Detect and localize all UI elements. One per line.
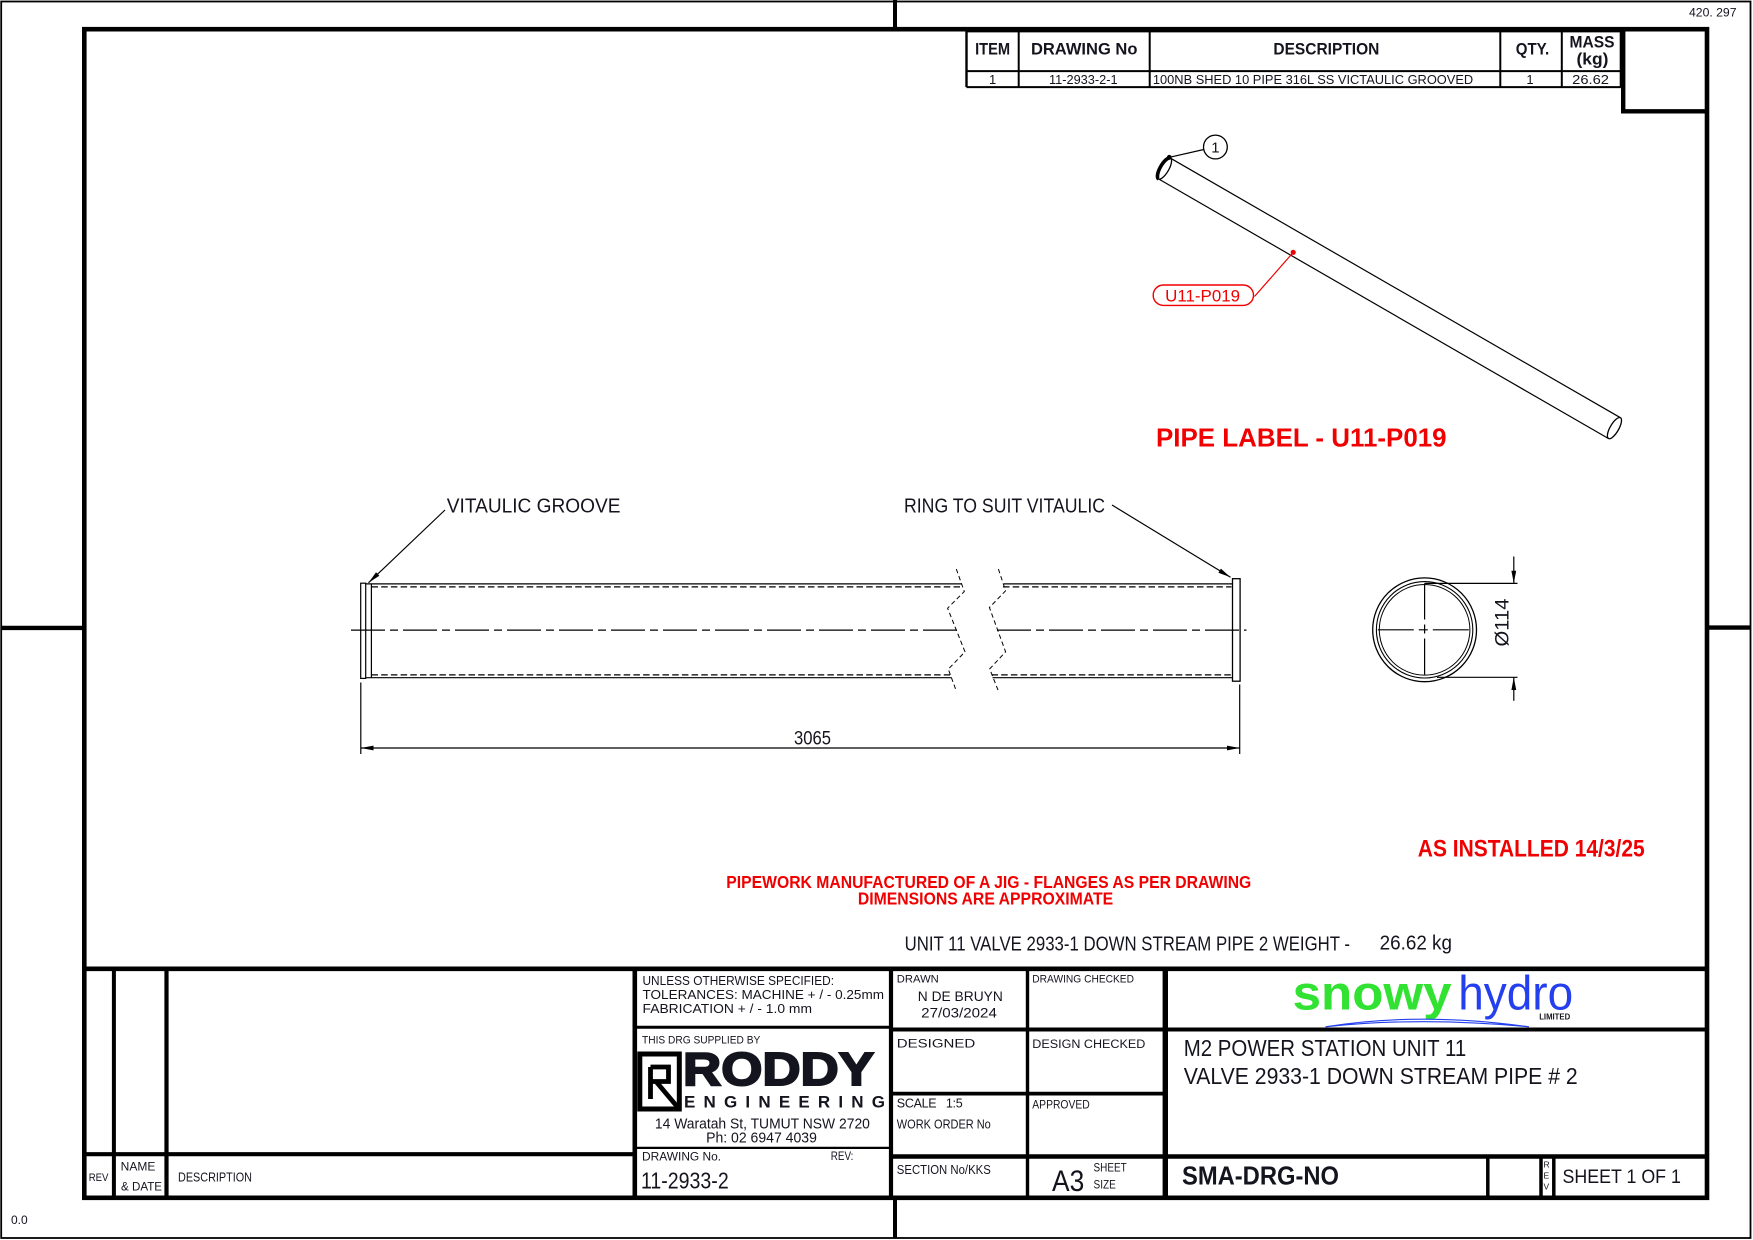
svg-text:Ø114: Ø114: [1493, 598, 1514, 646]
svg-text:1: 1: [1211, 139, 1219, 156]
svg-text:0.0: 0.0: [11, 1213, 28, 1227]
svg-text:UNLESS OTHERWISE SPECIFIED:: UNLESS OTHERWISE SPECIFIED:: [643, 974, 835, 988]
svg-text:V: V: [1544, 1182, 1550, 1192]
svg-text:DESIGNED: DESIGNED: [897, 1039, 975, 1051]
svg-text:AS INSTALLED 14/3/25: AS INSTALLED 14/3/25: [1418, 836, 1645, 863]
svg-text:DESCRIPTION: DESCRIPTION: [178, 1171, 252, 1185]
svg-text:M2 POWER STATION UNIT 11: M2 POWER STATION UNIT 11: [1184, 1035, 1467, 1061]
svg-text:E: E: [1544, 1171, 1550, 1181]
svg-text:VALVE 2933-1 DOWN STREAM PIPE: VALVE 2933-1 DOWN STREAM PIPE # 2: [1184, 1063, 1578, 1089]
svg-text:11-2933-2: 11-2933-2: [641, 1168, 729, 1194]
svg-text:SCALE 1:5: SCALE 1:5: [897, 1097, 963, 1111]
svg-text:DRAWING No: DRAWING No: [1031, 40, 1138, 59]
svg-text:1: 1: [1526, 72, 1533, 87]
svg-text:SIZE: SIZE: [1094, 1178, 1116, 1192]
svg-text:QTY.: QTY.: [1516, 40, 1550, 59]
svg-text:(kg): (kg): [1577, 50, 1609, 69]
svg-text:26.62 kg: 26.62 kg: [1380, 933, 1452, 955]
svg-text:U11-P019: U11-P019: [1165, 288, 1240, 306]
svg-text:1: 1: [989, 72, 996, 87]
svg-text:SHEET 1 OF 1: SHEET 1 OF 1: [1563, 1167, 1681, 1188]
svg-text:DESCRIPTION: DESCRIPTION: [1273, 40, 1379, 59]
svg-text:FABRICATION + / - 1.0 mm: FABRICATION + / - 1.0 mm: [643, 1002, 813, 1016]
svg-text:VITAULIC GROOVE: VITAULIC GROOVE: [447, 496, 621, 518]
svg-text:R: R: [1544, 1160, 1550, 1170]
svg-text:26.62: 26.62: [1572, 72, 1609, 87]
svg-text:ENGINEERING: ENGINEERING: [684, 1093, 885, 1112]
svg-text:APPROVED: APPROVED: [1032, 1100, 1089, 1112]
svg-text:REV:: REV:: [831, 1151, 854, 1163]
svg-text:Ph: 02 6947 4039: Ph: 02 6947 4039: [706, 1130, 817, 1147]
svg-text:snowy: snowy: [1293, 968, 1452, 1021]
svg-text:DRAWING No.: DRAWING No.: [642, 1152, 721, 1164]
svg-text:DESIGN CHECKED: DESIGN CHECKED: [1032, 1039, 1145, 1051]
svg-text:A3: A3: [1052, 1165, 1084, 1198]
svg-text:UNIT 11 VALVE 2933-1 DOWN STRE: UNIT 11 VALVE 2933-1 DOWN STREAM PIPE 2 …: [905, 933, 1350, 956]
svg-text:3065: 3065: [794, 729, 831, 750]
svg-text:WORK ORDER No: WORK ORDER No: [897, 1117, 991, 1131]
svg-text:NAME: NAME: [121, 1160, 156, 1174]
svg-text:RING TO SUIT VITAULIC: RING TO SUIT VITAULIC: [904, 496, 1105, 518]
svg-text:TOLERANCES: MACHINE + / - 0.25: TOLERANCES: MACHINE + / - 0.25mm: [643, 988, 885, 1002]
svg-text:SECTION No/KKS: SECTION No/KKS: [897, 1163, 991, 1177]
svg-text:11-2933-2-1: 11-2933-2-1: [1049, 72, 1118, 87]
svg-text:DIMENSIONS ARE APPROXIMATE: DIMENSIONS ARE APPROXIMATE: [858, 889, 1113, 909]
svg-text:REV: REV: [89, 1172, 109, 1184]
svg-text:PIPE LABEL - U11-P019: PIPE LABEL - U11-P019: [1156, 423, 1447, 453]
svg-text:100NB SHED 10 PIPE 316L SS VIC: 100NB SHED 10 PIPE 316L SS VICTAULIC GRO…: [1153, 73, 1473, 87]
svg-text:SMA-DRG-NO: SMA-DRG-NO: [1182, 1161, 1339, 1191]
svg-text:420. 297: 420. 297: [1689, 8, 1737, 20]
svg-text:N DE BRUYN: N DE BRUYN: [918, 988, 1003, 1004]
svg-text:DRAWING CHECKED: DRAWING CHECKED: [1032, 974, 1134, 986]
svg-text:& DATE: & DATE: [121, 1180, 162, 1194]
svg-text:SHEET: SHEET: [1094, 1161, 1128, 1175]
svg-text:ITEM: ITEM: [975, 40, 1010, 59]
svg-text:RODDY: RODDY: [683, 1043, 874, 1095]
svg-text:LIMITED: LIMITED: [1539, 1012, 1570, 1022]
svg-text:DRAWN: DRAWN: [897, 974, 939, 986]
svg-text:27/03/2024: 27/03/2024: [921, 1005, 997, 1021]
